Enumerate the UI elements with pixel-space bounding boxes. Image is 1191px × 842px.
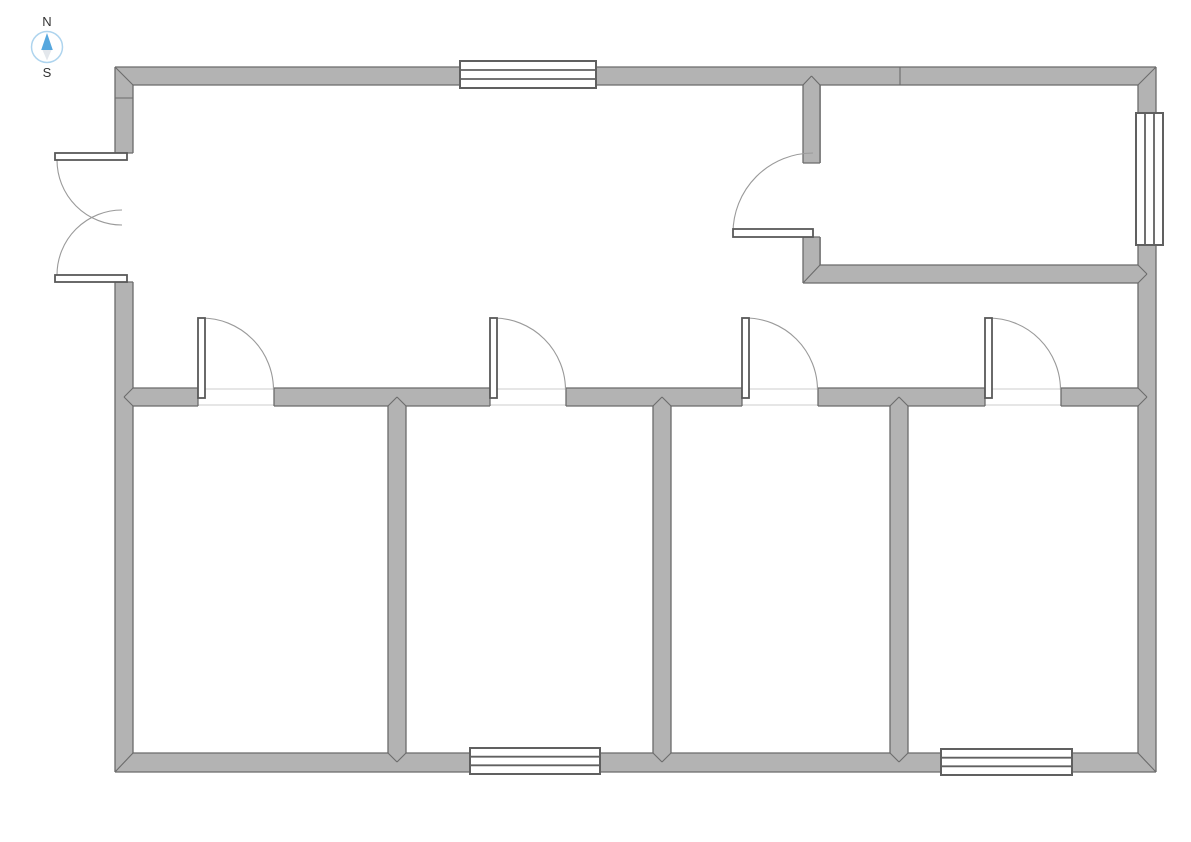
wall-segment [566, 388, 742, 406]
door-leaf [55, 153, 127, 160]
door-swing-arc [57, 210, 122, 275]
floor-plan-canvas: N S [0, 0, 1191, 842]
wall-segment [818, 388, 985, 406]
window [941, 749, 1072, 775]
floor-plan-svg: N S [0, 0, 1191, 842]
window [1136, 113, 1163, 245]
wall-segment [115, 282, 133, 772]
door-swing-arc [57, 160, 122, 225]
wall-segment [115, 67, 133, 153]
door-swing-arc [989, 318, 1061, 390]
door-leaf [985, 318, 992, 398]
wall-segment [388, 406, 406, 753]
plan-layer [55, 61, 1163, 775]
wall-segment [596, 67, 1156, 85]
window [470, 748, 600, 774]
wall-segment [274, 388, 490, 406]
compass-rose: N S [32, 14, 63, 80]
door-leaf [742, 318, 749, 398]
door-swing-arc [746, 318, 818, 390]
compass-north-label: N [42, 14, 51, 29]
door-leaf [733, 229, 813, 237]
door-leaf [198, 318, 205, 398]
compass-south-label: S [43, 65, 52, 80]
door-leaf [490, 318, 497, 398]
wall-segment [115, 67, 460, 85]
wall-segment [803, 85, 821, 163]
wall-segment [803, 265, 1138, 283]
window [460, 61, 596, 88]
door-swing-arc [202, 318, 274, 390]
wall-segment [1061, 388, 1138, 406]
wall-segment [653, 406, 671, 753]
wall-segment [133, 388, 198, 406]
door-swing-arc [733, 153, 813, 233]
door-leaf [55, 275, 127, 282]
door-swing-arc [494, 318, 566, 390]
wall-segment [890, 406, 908, 753]
